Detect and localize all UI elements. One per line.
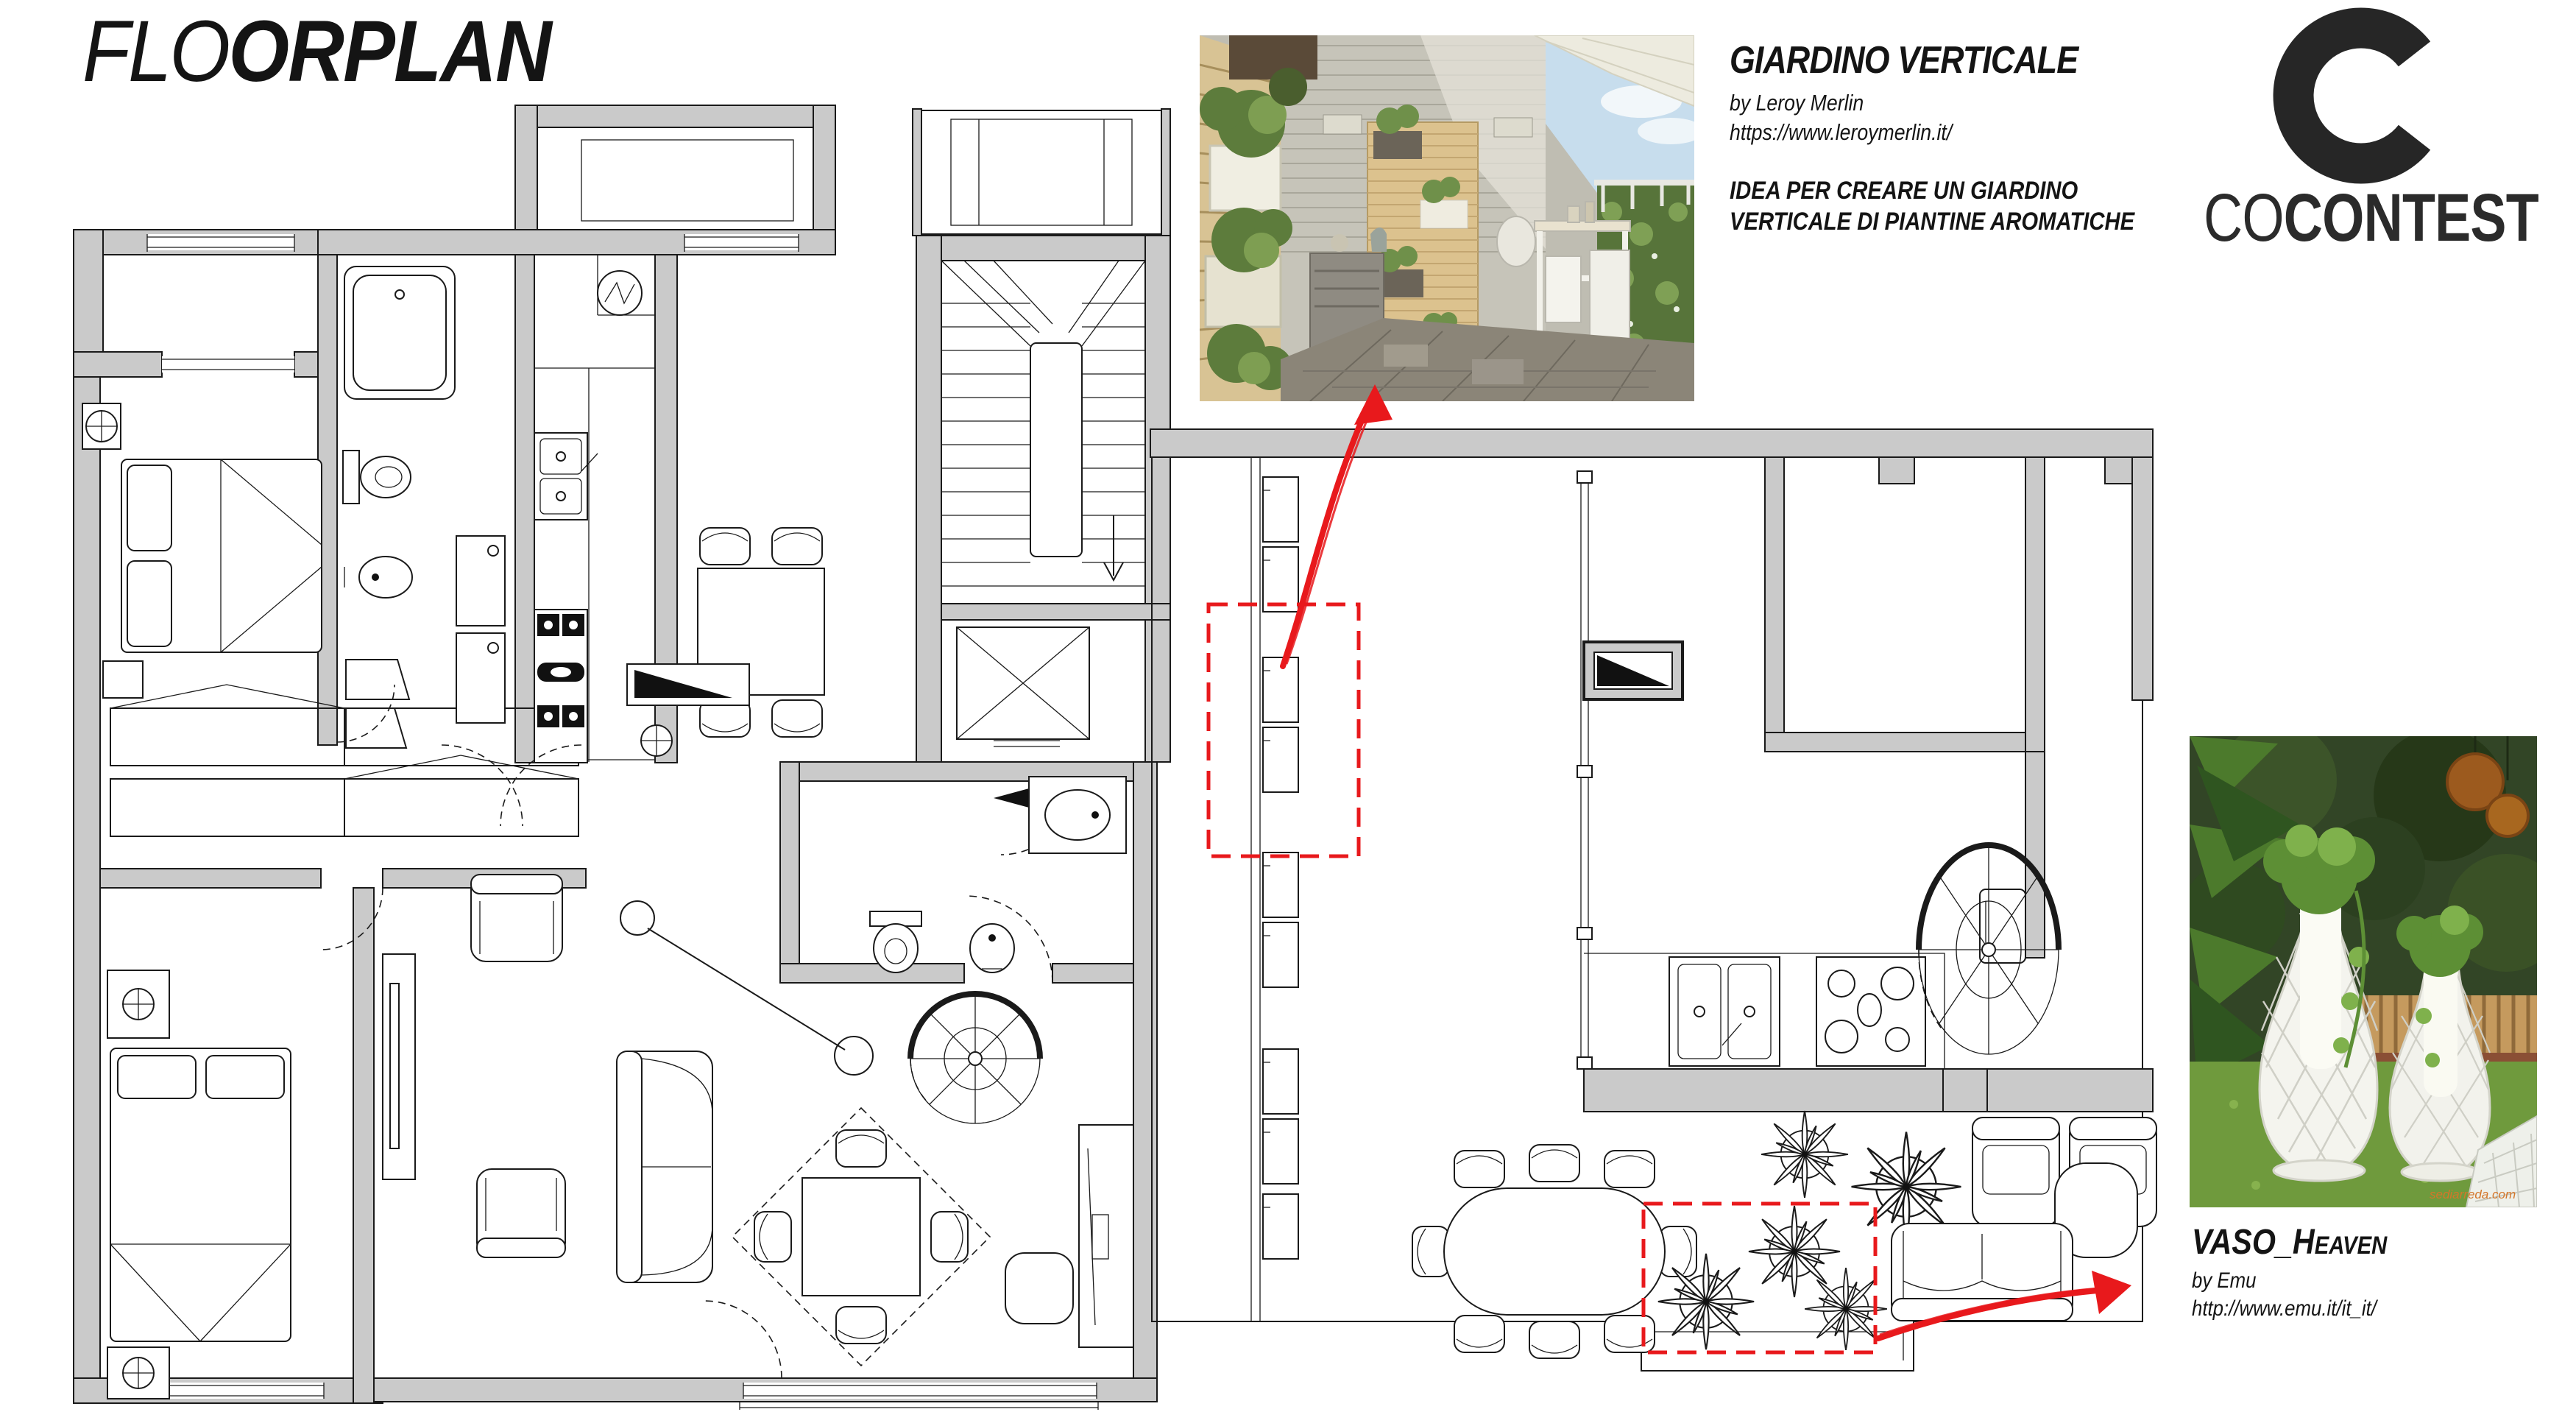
title-bold: ORPLAN [228,3,551,100]
highlight-rect-vases [1643,1204,1875,1352]
giardino-description: IDEA PER CREARE UN GIARDINO VERTICALE DI… [1730,175,2211,237]
highlight-rect-planters [1209,604,1359,856]
presentation-board: sediarreda.com [0,0,2576,1412]
vaso-byline: by Emu [2192,1268,2521,1293]
giardino-annotation: GIARDINO VERTICALE by Leroy Merlin https… [1730,38,2211,237]
red-arrow-to-vaso [1878,1288,2109,1338]
arrowhead [2092,1271,2131,1314]
vaso-title: VASO_HEAVEN [2192,1222,2521,1263]
title-light: FLO [82,3,228,100]
giardino-title: GIARDINO VERTICALE [1730,38,2211,82]
vaso-annotation: VASO_HEAVEN by Emu http://www.emu.it/it_… [2192,1222,2521,1321]
vaso-url: http://www.emu.it/it_it/ [2192,1296,2521,1321]
cocontest-logo-word: COCONTEST [2204,180,2538,257]
giardino-url: https://www.leroymerlin.it/ [1730,119,2211,146]
cocontest-logo-mark [2267,0,2458,191]
page-title: FLOORPLAN [82,4,551,100]
arrowhead [1354,384,1393,425]
red-arrow-to-photo [1283,403,1373,666]
giardino-byline: by Leroy Merlin [1730,90,2211,116]
